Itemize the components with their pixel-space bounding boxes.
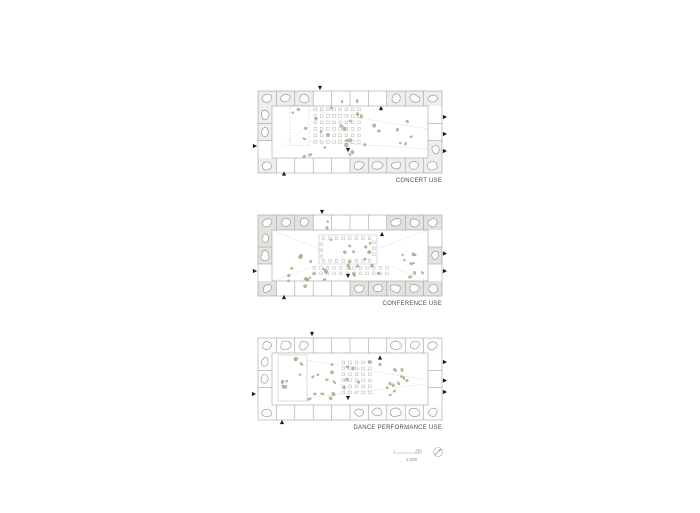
people-figures <box>287 220 424 288</box>
plan-concert-use: CONCERT USE <box>250 79 450 199</box>
sight-lines <box>272 110 428 154</box>
plan-conference-use: CONFERENCE USE <box>250 203 450 323</box>
drawing-footer: 1:200 <box>388 440 452 470</box>
scale-bar: 1:200 <box>394 450 421 462</box>
chair-grid <box>314 108 360 143</box>
sight-lines <box>307 360 426 398</box>
north-arrow-icon <box>434 448 443 457</box>
plan-label-dance: DANCE PERFORMANCE USE <box>250 425 442 432</box>
scale-ratio-text: 1:200 <box>406 457 418 462</box>
plan-label-concert: CONCERT USE <box>250 178 442 185</box>
scale-and-north-arrow: 1:200 <box>388 440 452 470</box>
chair-grid <box>342 361 371 394</box>
stage-and-table-outlines <box>278 355 307 401</box>
plan-label-conference: CONFERENCE USE <box>250 301 442 308</box>
architectural-plans-sheet: CONCERT USE CONFERENCE USE DANCE PERFORM… <box>0 0 700 513</box>
plan-dance-performance-use: DANCE PERFORMANCE USE <box>250 326 450 446</box>
